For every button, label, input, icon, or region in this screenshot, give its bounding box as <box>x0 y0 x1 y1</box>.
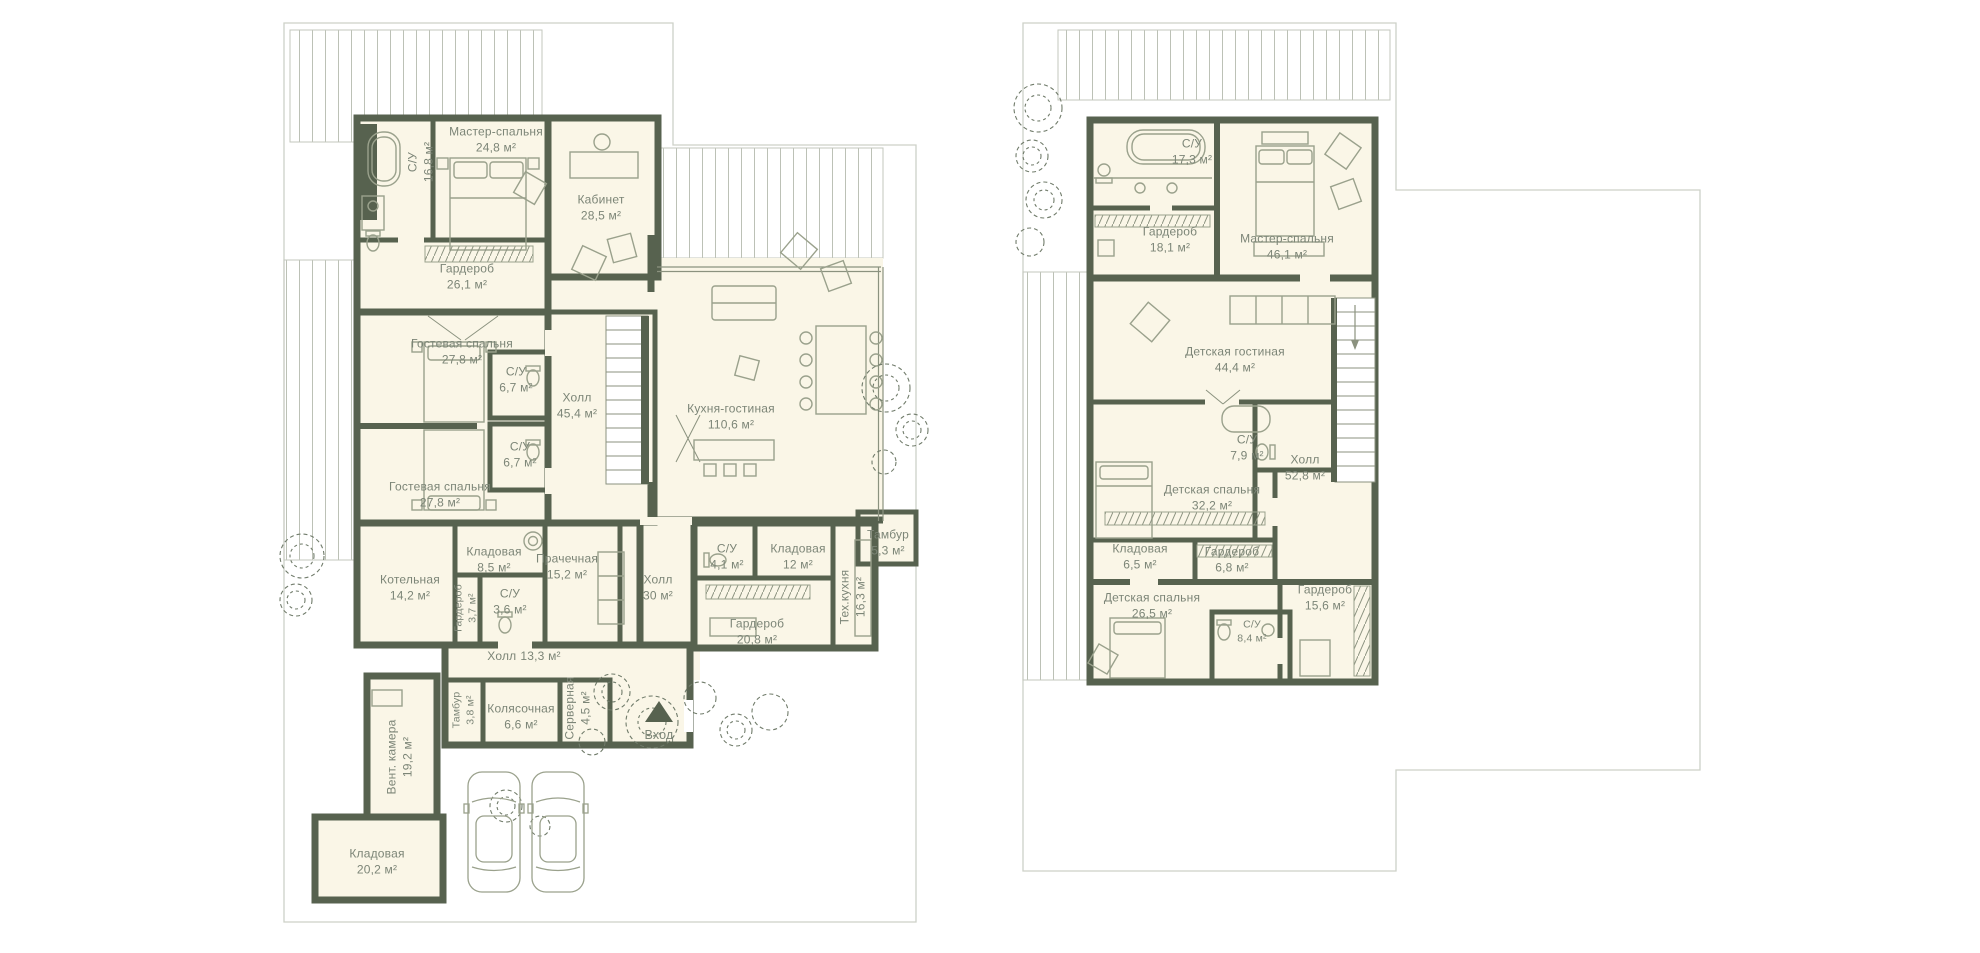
room-label: С/У7,9 м² <box>1230 432 1263 463</box>
floorplan-graphics <box>0 0 1980 953</box>
car <box>464 772 524 892</box>
room-label: Детская спальня32,2 м² <box>1164 482 1260 513</box>
room-label: С/У6,7 м² <box>499 364 532 395</box>
entrance-label: Вход <box>644 727 673 743</box>
room-label: Гардероб15,6 м² <box>1298 582 1352 613</box>
room-label: Гардероб6,8 м² <box>1205 544 1259 575</box>
room-label: Колясочная6,6 м² <box>487 701 555 732</box>
room-label: Мастер-спальня46,1 м² <box>1240 231 1334 262</box>
room-label: Кладовая8,5 м² <box>466 544 521 575</box>
room-label: С/У6,7 м² <box>503 439 536 470</box>
room-label: Детская спальня26,5 м² <box>1104 590 1200 621</box>
room-label: Тамбур3,8 м² <box>450 692 477 729</box>
room-label: Холл30 м² <box>643 572 673 603</box>
thick-wall <box>355 124 377 220</box>
staircase <box>1331 298 1375 482</box>
room-label: Детская гостиная44,4 м² <box>1185 344 1285 375</box>
room-label: Холл13,3 м² <box>485 649 562 665</box>
room-label: Кладовая12 м² <box>770 541 825 572</box>
room-label: Тех.кухня16,3 м² <box>837 570 868 625</box>
room-label: Холл52,8 м² <box>1285 452 1325 483</box>
room-label: Кладовая20,2 м² <box>349 846 404 877</box>
room-label: Гостевая спальня27,8 м² <box>389 479 491 510</box>
room-label: Гардероб3,7 м² <box>452 584 479 632</box>
room-label: Кухня-гостиная110,6 м² <box>687 401 775 432</box>
room-label: Холл45,4 м² <box>557 390 597 421</box>
room-label: Серверная4,5 м² <box>562 676 593 739</box>
room-label: С/У16,8 м² <box>405 142 436 182</box>
room-label: Гостевая спальня27,8 м² <box>411 336 513 367</box>
car <box>528 772 588 892</box>
room-label: Котельная14,2 м² <box>380 572 440 603</box>
room-label: Мастер-спальня24,8 м² <box>449 124 543 155</box>
room-label: С/У17,3 м² <box>1172 136 1212 167</box>
room-label: Вент. камера19,2 м² <box>384 720 415 795</box>
room-label: Гардероб18,1 м² <box>1143 224 1197 255</box>
room-label: С/У3,6 м² <box>493 586 526 617</box>
room-label: Прачечная15,2 м² <box>536 551 598 582</box>
room-label: С/У8,4 м² <box>1237 618 1266 645</box>
floorplan-canvas: С/У16,8 м² Мастер-спальня24,8 м² Кабинет… <box>0 0 1980 953</box>
room-label: Кабинет28,5 м² <box>577 192 624 223</box>
room-label: С/У4,1 м² <box>710 541 743 572</box>
room-label: Кладовая6,5 м² <box>1112 541 1167 572</box>
room-label: Гардероб26,1 м² <box>440 261 494 292</box>
room-label: Тамбур5,3 м² <box>867 527 909 558</box>
room-label: Гардероб20,8 м² <box>730 616 784 647</box>
